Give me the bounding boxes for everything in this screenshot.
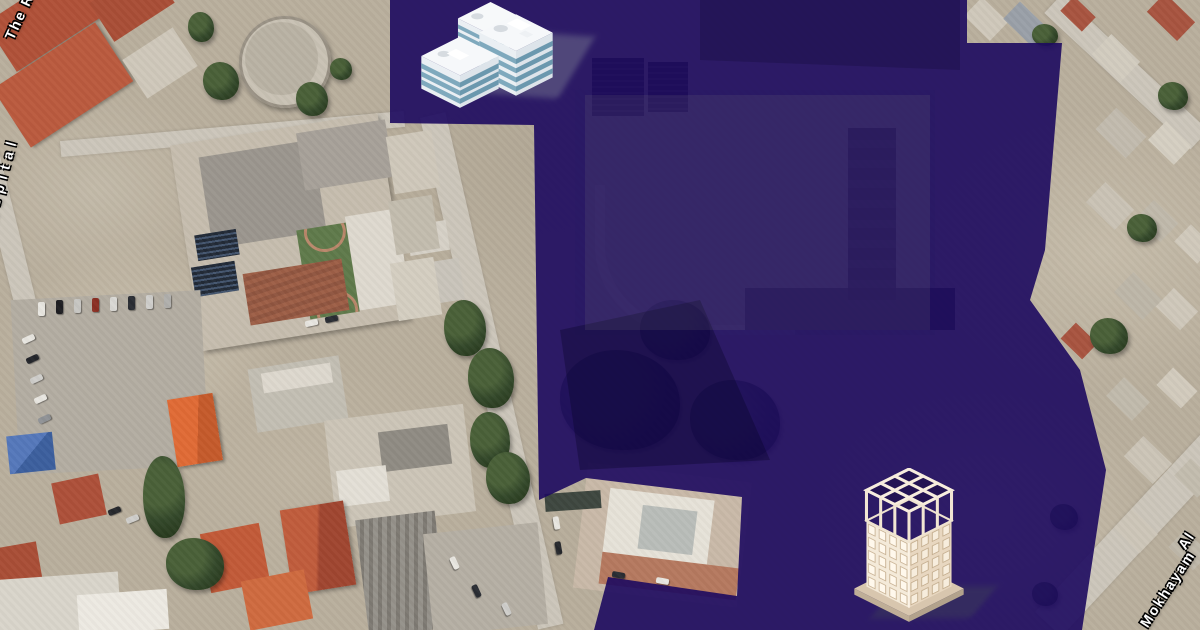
overlay-light-field	[585, 95, 930, 330]
overlay-shade-top	[700, 0, 960, 70]
construction-apartment-3d-icon	[848, 468, 970, 628]
office-building-3d-icon	[418, 0, 558, 112]
satellite-map-card: The R Hospital Mokhayam Al	[0, 0, 1200, 630]
highlight-zone-overlay	[0, 0, 1200, 630]
